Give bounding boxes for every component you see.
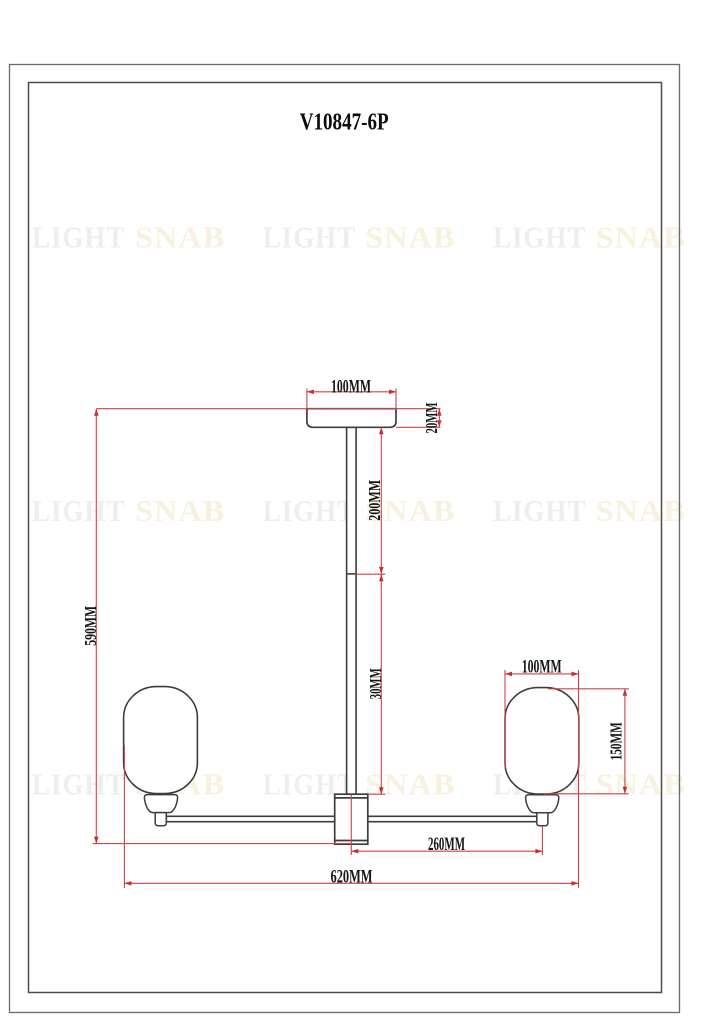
svg-text:590MM: 590MM [81, 606, 100, 646]
svg-text:SNAB: SNAB [596, 767, 686, 801]
svg-text:20MM: 20MM [422, 403, 441, 434]
svg-text:SNAB: SNAB [365, 767, 455, 801]
svg-text:LIGHT: LIGHT [493, 494, 586, 528]
svg-text:200MM: 200MM [365, 480, 384, 521]
svg-text:LIGHT: LIGHT [493, 221, 586, 255]
svg-text:LIGHT: LIGHT [32, 767, 125, 801]
svg-text:SNAB: SNAB [596, 494, 686, 528]
svg-text:100MM: 100MM [331, 377, 371, 398]
svg-text:LIGHT: LIGHT [263, 494, 356, 528]
svg-text:LIGHT: LIGHT [32, 221, 125, 255]
svg-text:30MM: 30MM [366, 668, 385, 699]
svg-text:SNAB: SNAB [135, 221, 225, 255]
svg-text:SNAB: SNAB [596, 221, 686, 255]
svg-text:LIGHT: LIGHT [32, 494, 125, 528]
svg-text:100MM: 100MM [522, 656, 562, 677]
svg-text:LIGHT: LIGHT [263, 221, 356, 255]
svg-text:SNAB: SNAB [135, 494, 225, 528]
svg-text:SNAB: SNAB [365, 221, 455, 255]
svg-text:150MM: 150MM [607, 722, 626, 760]
svg-text:260MM: 260MM [428, 834, 465, 855]
svg-text:V10847-6P: V10847-6P [300, 109, 389, 136]
svg-text:620MM: 620MM [331, 866, 373, 887]
